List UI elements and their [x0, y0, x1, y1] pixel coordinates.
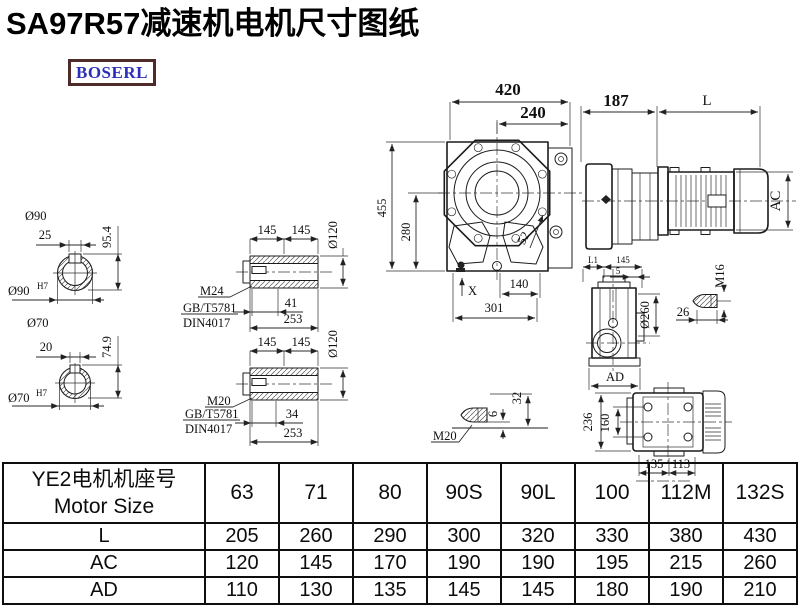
dim-34-label: 34: [286, 407, 299, 421]
cell-AD-90l: 145: [501, 577, 575, 604]
cell-L-100: 330: [575, 523, 649, 550]
cell-AC-90s: 190: [427, 550, 501, 577]
dim-d70h7-label: Ø70: [8, 391, 30, 405]
dim-d90h7-tol-label: H7: [37, 281, 48, 291]
cell-AD-71: 130: [279, 577, 353, 604]
dim-145c-label: 145: [258, 335, 277, 349]
technical-drawing: 420 240 455 280 52 140 301 X: [0, 36, 800, 496]
dim-160-label: 160: [598, 414, 612, 433]
dim-236-label: 236: [581, 413, 595, 432]
table-row-AC: AC 120 145 170 190 190 195 215 260: [3, 550, 797, 577]
cell-L-63: 205: [205, 523, 279, 550]
col-132s: 132S: [723, 463, 797, 523]
thread-m16-label: M16: [713, 264, 727, 288]
dim-d120b-label: Ø120: [326, 330, 340, 358]
cell-L-90l: 320: [501, 523, 575, 550]
dim-253a-label: 253: [284, 312, 303, 326]
shaft-section-70: Ø70 20 74.9 Ø70 H7: [8, 316, 122, 410]
dim-420-label: 420: [495, 80, 521, 99]
dim-L-label: L: [702, 93, 711, 109]
dim-41-label: 41: [285, 296, 298, 310]
col-100: 100: [575, 463, 649, 523]
cell-AD-90s: 145: [427, 577, 501, 604]
cell-AC-71: 145: [279, 550, 353, 577]
dim-d70h7-tol-label: H7: [36, 388, 47, 398]
col-80: 80: [353, 463, 427, 523]
dim-145e-label: 145: [616, 255, 630, 265]
dim-d90h7-label: Ø90: [8, 284, 30, 298]
cell-AC-112m: 215: [649, 550, 723, 577]
thread-m24-label: M24: [200, 284, 224, 298]
dim-187-label: 187: [603, 91, 629, 110]
dim-d90-label: Ø90: [25, 209, 47, 223]
cell-L-112m: 380: [649, 523, 723, 550]
std-din4017b-label: DIN4017: [185, 422, 232, 436]
col-90s: 90S: [427, 463, 501, 523]
cell-AD-112m: 190: [649, 577, 723, 604]
front-view: 420 240 455 280 52 140 301 X: [375, 80, 584, 322]
dim-52-label: 52: [514, 229, 532, 247]
dim-240-label: 240: [520, 103, 546, 122]
dim-20-label: 20: [40, 340, 53, 354]
dim-d120a-label: Ø120: [326, 221, 340, 249]
dim-253b-label: 253: [284, 426, 303, 440]
dim-280-label: 280: [399, 223, 413, 242]
cell-L-90s: 300: [427, 523, 501, 550]
col-71: 71: [279, 463, 353, 523]
cell-AD-80: 135: [353, 577, 427, 604]
dim-AC-label: AC: [768, 191, 784, 212]
cell-L-71: 260: [279, 523, 353, 550]
dim-455-label: 455: [375, 199, 389, 218]
col-112m: 112M: [649, 463, 723, 523]
drain-plug-icon: [601, 195, 611, 204]
output-flange-view: L1 145 5 Ø260 AD: [583, 255, 660, 390]
dim-32-label: 32: [510, 392, 524, 405]
cell-AC-80: 170: [353, 550, 427, 577]
dim-AD-label: AD: [606, 370, 624, 384]
row-label-AD: AD: [3, 577, 205, 604]
dim-140-label: 140: [510, 277, 529, 291]
side-view: 187 L AC: [581, 91, 796, 249]
table-row-L: L 205 260 290 300 320 330 380 430: [3, 523, 797, 550]
dim-145d-label: 145: [292, 335, 311, 349]
dim-145b-label: 145: [292, 223, 311, 237]
header-motor-size-cn: YE2电机机座号: [4, 466, 204, 493]
cell-AC-100: 195: [575, 550, 649, 577]
cell-L-80: 290: [353, 523, 427, 550]
thread-m20b-label: M20: [433, 429, 457, 443]
drawing-sheet: SA97R57减速机电机尺寸图纸 BOSERL: [0, 0, 800, 613]
cell-AD-63: 110: [205, 577, 279, 604]
dim-145a-label: 145: [258, 223, 277, 237]
cell-AC-63: 120: [205, 550, 279, 577]
col-63: 63: [205, 463, 279, 523]
row-label-L: L: [3, 523, 205, 550]
dim-x-label: X: [468, 284, 477, 298]
std-gbt5781b-label: GB/T5781: [185, 407, 238, 421]
dim-74-9-label: 74.9: [100, 336, 114, 358]
std-din4017-label: DIN4017: [183, 316, 230, 330]
shaft-section-90: Ø90 25 95.4 Ø90 H7: [8, 209, 122, 304]
dim-d260-label: Ø260: [638, 301, 652, 329]
std-gbt5781-label: GB/T5781: [183, 301, 236, 315]
cell-AD-132s: 210: [723, 577, 797, 604]
dim-95-4-label: 95.4: [100, 225, 114, 248]
dim-6-label: 6: [486, 411, 500, 417]
cell-AD-100: 180: [575, 577, 649, 604]
dim-26-label: 26: [677, 305, 690, 319]
col-90l: 90L: [501, 463, 575, 523]
dim-L1-label: L1: [588, 255, 598, 265]
header-motor-size: YE2电机机座号 Motor Size: [3, 463, 205, 523]
bolt-m20-detail: M20 6 32: [431, 392, 548, 443]
output-sleeve-m24: 145 145 Ø120 M24 GB/T5781 DIN4017 41 253: [181, 221, 348, 332]
motor-size-table: YE2电机机座号 Motor Size 63 71 80 90S 90L 100…: [2, 462, 798, 605]
table-header-row: YE2电机机座号 Motor Size 63 71 80 90S 90L 100…: [3, 463, 797, 523]
row-label-AC: AC: [3, 550, 205, 577]
cell-L-132s: 430: [723, 523, 797, 550]
output-sleeve-m20: 145 145 Ø120 M20 GB/T5781 DIN4017 34 253: [183, 330, 348, 446]
dim-25-label: 25: [39, 228, 52, 242]
table-row-AD: AD 110 130 135 145 145 180 190 210: [3, 577, 797, 604]
thread-m20-label: M20: [207, 394, 231, 408]
dim-5-label: 5: [616, 266, 621, 276]
dim-d70-label: Ø70: [27, 316, 49, 330]
cell-AC-132s: 260: [723, 550, 797, 577]
bolt-m16-detail: M16 26: [676, 264, 731, 324]
header-motor-size-en: Motor Size: [4, 493, 204, 520]
dim-301-label: 301: [485, 301, 504, 315]
cell-AC-90l: 190: [501, 550, 575, 577]
